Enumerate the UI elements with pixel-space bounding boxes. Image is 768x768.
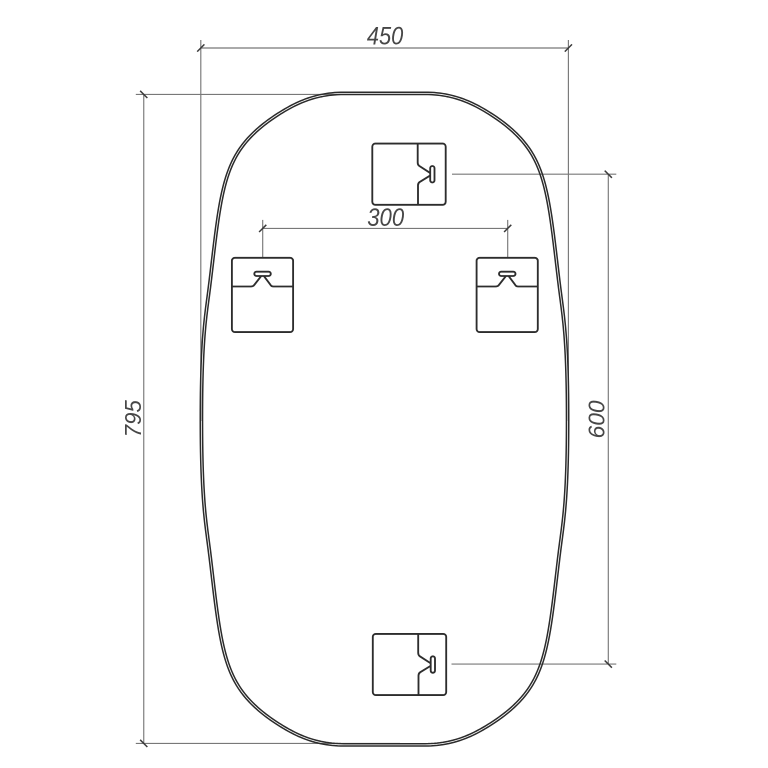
- svg-text:795: 795: [120, 400, 146, 437]
- svg-text:450: 450: [367, 23, 403, 51]
- svg-text:300: 300: [367, 204, 404, 232]
- svg-text:600: 600: [583, 400, 609, 438]
